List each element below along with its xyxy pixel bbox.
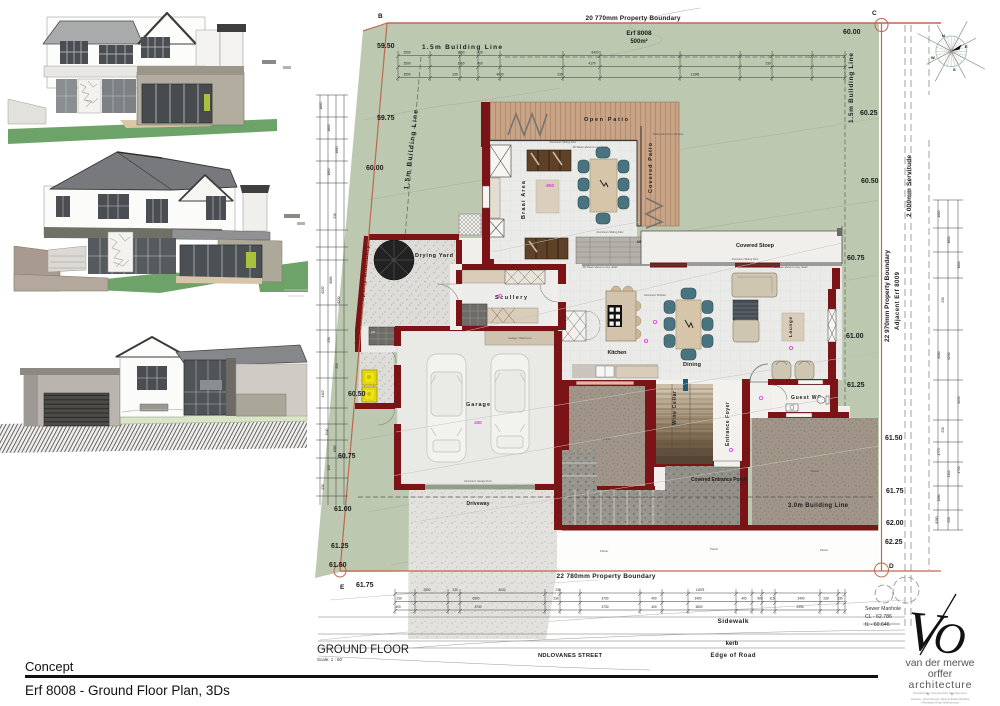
svg-text:250: 250	[335, 363, 339, 369]
svg-text:230: 230	[553, 597, 559, 601]
svg-text:250: 250	[947, 517, 951, 523]
svg-text:60.75: 60.75	[847, 255, 865, 262]
svg-text:230: 230	[941, 427, 945, 433]
svg-text:61.00: 61.00	[334, 506, 352, 513]
svg-text:6230: 6230	[337, 296, 341, 303]
svg-text:230: 230	[327, 337, 331, 343]
svg-text:Sidewalk: Sidewalk	[718, 618, 749, 625]
svg-text:Garage: Garage	[466, 402, 490, 408]
svg-text:60.00: 60.00	[366, 165, 384, 172]
svg-text:22 780mm Property Boundary: 22 780mm Property Boundary	[557, 573, 656, 580]
svg-text:3730: 3730	[601, 605, 608, 609]
svg-text:S: S	[953, 67, 956, 72]
svg-text:UP: UP	[371, 330, 375, 334]
svg-text:62.25: 62.25	[885, 539, 903, 546]
svg-text:2500: 2500	[403, 73, 410, 77]
svg-text:1770: 1770	[937, 448, 941, 455]
svg-text:62.00: 62.00	[886, 520, 904, 527]
svg-text:1080: 1080	[333, 445, 337, 452]
svg-text:59.50: 59.50	[377, 43, 395, 50]
svg-text:900: 900	[757, 597, 763, 601]
svg-text:1060: 1060	[457, 51, 464, 55]
svg-text:Residential | Commercial | Dev: Residential | Commercial | Development	[913, 691, 967, 695]
svg-text:230: 230	[823, 597, 829, 601]
svg-text:4170: 4170	[588, 62, 595, 66]
svg-text:2 000mm Servitude: 2 000mm Servitude	[906, 155, 913, 217]
svg-text:Sewer Manhole: Sewer Manhole	[865, 606, 901, 612]
svg-text:NDLOVANES STREET: NDLOVANES STREET	[538, 653, 602, 659]
svg-text:230: 230	[452, 588, 458, 592]
svg-text:GROUND FLOOR: GROUND FLOOR	[317, 642, 409, 656]
svg-text:150: 150	[327, 465, 331, 471]
svg-text:4750: 4750	[957, 466, 961, 473]
svg-text:1060: 1060	[457, 62, 464, 66]
svg-text:4 Bottelary Road Stellenbosch: 4 Bottelary Road Stellenbosch	[921, 700, 959, 704]
svg-text:2500: 2500	[403, 62, 410, 66]
svg-text:Water tank: Water tank	[388, 281, 401, 285]
svg-text:8080: 8080	[937, 351, 941, 358]
svg-text:2500: 2500	[403, 51, 410, 55]
svg-text:230: 230	[557, 73, 563, 77]
svg-text:61.25: 61.25	[847, 382, 865, 389]
svg-text:230: 230	[941, 297, 945, 303]
svg-text:1140: 1140	[325, 428, 329, 435]
svg-text:3730: 3730	[601, 597, 608, 601]
svg-text:Braai Area: Braai Area	[521, 180, 527, 219]
svg-text:Edge of Road: Edge of Road	[711, 653, 756, 659]
svg-text:230: 230	[837, 597, 843, 601]
svg-text:1800: 1800	[947, 236, 951, 243]
svg-text:-850: -850	[545, 183, 555, 188]
svg-text:4000: 4000	[496, 73, 503, 77]
svg-text:60.50: 60.50	[348, 391, 366, 398]
svg-text:Covered Entrance Porch: Covered Entrance Porch	[691, 477, 747, 483]
svg-text:3400: 3400	[694, 597, 701, 601]
svg-text:N: N	[942, 33, 945, 38]
svg-text:Adjacent Erf 8009: Adjacent Erf 8009	[895, 271, 901, 330]
svg-text:Aluminium Window: Aluminium Window	[644, 293, 666, 297]
svg-text:60.50: 60.50	[861, 178, 879, 185]
svg-text:61.00: 61.00	[846, 333, 864, 340]
svg-text:400: 400	[477, 51, 483, 55]
svg-text:architecture: architecture	[909, 679, 972, 691]
svg-text:2400: 2400	[797, 597, 804, 601]
svg-text:Covered Stoep: Covered Stoep	[736, 243, 775, 249]
svg-text:E: E	[965, 44, 968, 49]
svg-text:Scale: 1 : 50: Scale: 1 : 50	[317, 657, 343, 662]
svg-text:3800: 3800	[695, 605, 702, 609]
svg-text:RC Beam above to eng. detail: RC Beam above to eng. detail	[773, 265, 808, 269]
svg-text:61.75: 61.75	[886, 488, 904, 495]
svg-text:2500: 2500	[423, 588, 430, 592]
svg-text:400: 400	[651, 605, 657, 609]
svg-text:11575: 11575	[696, 588, 705, 592]
svg-text:IL - 60.646: IL - 60.646	[865, 622, 890, 628]
svg-text:1310: 1310	[947, 470, 951, 477]
svg-text:1.5m Building Line: 1.5m Building Line	[848, 53, 855, 123]
svg-text:Kitchen: Kitchen	[608, 350, 628, 356]
svg-text:Aluminium Sliding Door: Aluminium Sliding Door	[597, 230, 624, 234]
svg-text:Erf 8008 - Ground Floor Plan,: Erf 8008 - Ground Floor Plan, 3Ds	[25, 683, 230, 698]
svg-text:Planter: Planter	[710, 547, 718, 551]
svg-text:Aluminium Sliding Door: Aluminium Sliding Door	[550, 140, 577, 144]
svg-text:61.50: 61.50	[885, 435, 903, 442]
svg-text:Planter: Planter	[600, 549, 608, 553]
svg-text:C: C	[872, 10, 877, 17]
svg-text:22 970mm Property Boundary: 22 970mm Property Boundary	[884, 250, 891, 342]
svg-text:Erf 8008: Erf 8008	[626, 30, 652, 37]
svg-text:6400: 6400	[591, 51, 598, 55]
svg-text:6230: 6230	[321, 286, 325, 293]
svg-text:Wine Cellar: Wine Cellar	[672, 391, 678, 425]
svg-text:1080: 1080	[937, 494, 941, 501]
svg-text:61.50: 61.50	[329, 562, 347, 569]
svg-text:3.0m Building Line: 3.0m Building Line	[788, 503, 849, 509]
svg-text:61.75: 61.75	[356, 582, 374, 589]
svg-text:6280: 6280	[935, 516, 939, 523]
svg-text:CL - 62.786: CL - 62.786	[865, 614, 892, 620]
svg-text:230: 230	[452, 73, 458, 77]
svg-text:Aluminium Sliding Door: Aluminium Sliding Door	[732, 257, 759, 261]
svg-text:400: 400	[395, 605, 401, 609]
svg-text:61.25: 61.25	[331, 543, 349, 550]
svg-text:1800: 1800	[335, 146, 339, 153]
svg-text:kerb: kerb	[726, 641, 739, 647]
svg-text:1800: 1800	[327, 124, 331, 131]
svg-text:Entrance Foyer: Entrance Foyer	[725, 402, 731, 446]
svg-text:Lounge: Lounge	[788, 317, 793, 337]
svg-text:Drying Yard: Drying Yard	[415, 253, 453, 259]
svg-text:60.25: 60.25	[860, 110, 878, 117]
svg-text:430: 430	[474, 420, 482, 425]
svg-text:Covered Patio: Covered Patio	[648, 142, 654, 193]
svg-text:60.75: 60.75	[338, 453, 356, 460]
svg-text:6500: 6500	[472, 597, 479, 601]
svg-text:6230: 6230	[957, 396, 961, 403]
svg-text:E: E	[340, 584, 345, 591]
svg-text:4410: 4410	[321, 390, 325, 397]
svg-text:Dining: Dining	[683, 362, 701, 368]
svg-text:1800: 1800	[937, 210, 941, 217]
svg-text:B: B	[378, 13, 383, 20]
svg-text:Driveway: Driveway	[467, 501, 490, 507]
svg-text:400: 400	[477, 62, 483, 66]
svg-text:400: 400	[741, 597, 747, 601]
svg-text:W: W	[931, 55, 935, 60]
svg-text:4730: 4730	[474, 605, 481, 609]
svg-text:Concept: Concept	[25, 659, 74, 674]
svg-text:230: 230	[765, 62, 771, 66]
svg-text:D: D	[889, 563, 894, 570]
svg-text:1800: 1800	[319, 102, 323, 109]
svg-text:RC Beam above to eng. detail: RC Beam above to eng. detail	[573, 145, 608, 149]
svg-text:20 770mm Property Boundary: 20 770mm Property Boundary	[586, 15, 681, 22]
svg-text:4000: 4000	[498, 588, 505, 592]
svg-text:230: 230	[321, 484, 325, 490]
svg-text:230: 230	[396, 597, 402, 601]
svg-text:RC Beam above to eng. detail: RC Beam above to eng. detail	[583, 265, 618, 269]
svg-text:2995: 2995	[796, 605, 803, 609]
svg-text:59.75: 59.75	[377, 115, 395, 122]
svg-text:230: 230	[555, 588, 561, 592]
svg-text:6230: 6230	[947, 352, 951, 359]
svg-text:115: 115	[769, 597, 774, 601]
svg-text:Sliding Aluminium Window: Sliding Aluminium Window	[653, 132, 684, 136]
svg-text:Aluminium Garage Door: Aluminium Garage Door	[464, 479, 492, 483]
svg-text:1800: 1800	[327, 168, 331, 175]
svg-text:500m²: 500m²	[630, 38, 647, 45]
svg-text:Planter: Planter	[820, 548, 828, 552]
svg-text:8080: 8080	[329, 276, 333, 283]
svg-text:11345: 11345	[691, 73, 700, 77]
svg-text:Planter: Planter	[811, 469, 819, 473]
svg-text:400: 400	[651, 597, 657, 601]
svg-text:Garage / Washroom: Garage / Washroom	[508, 336, 531, 340]
svg-text:230: 230	[333, 213, 337, 219]
svg-text:60.00: 60.00	[843, 29, 861, 36]
svg-text:1800: 1800	[957, 261, 961, 268]
